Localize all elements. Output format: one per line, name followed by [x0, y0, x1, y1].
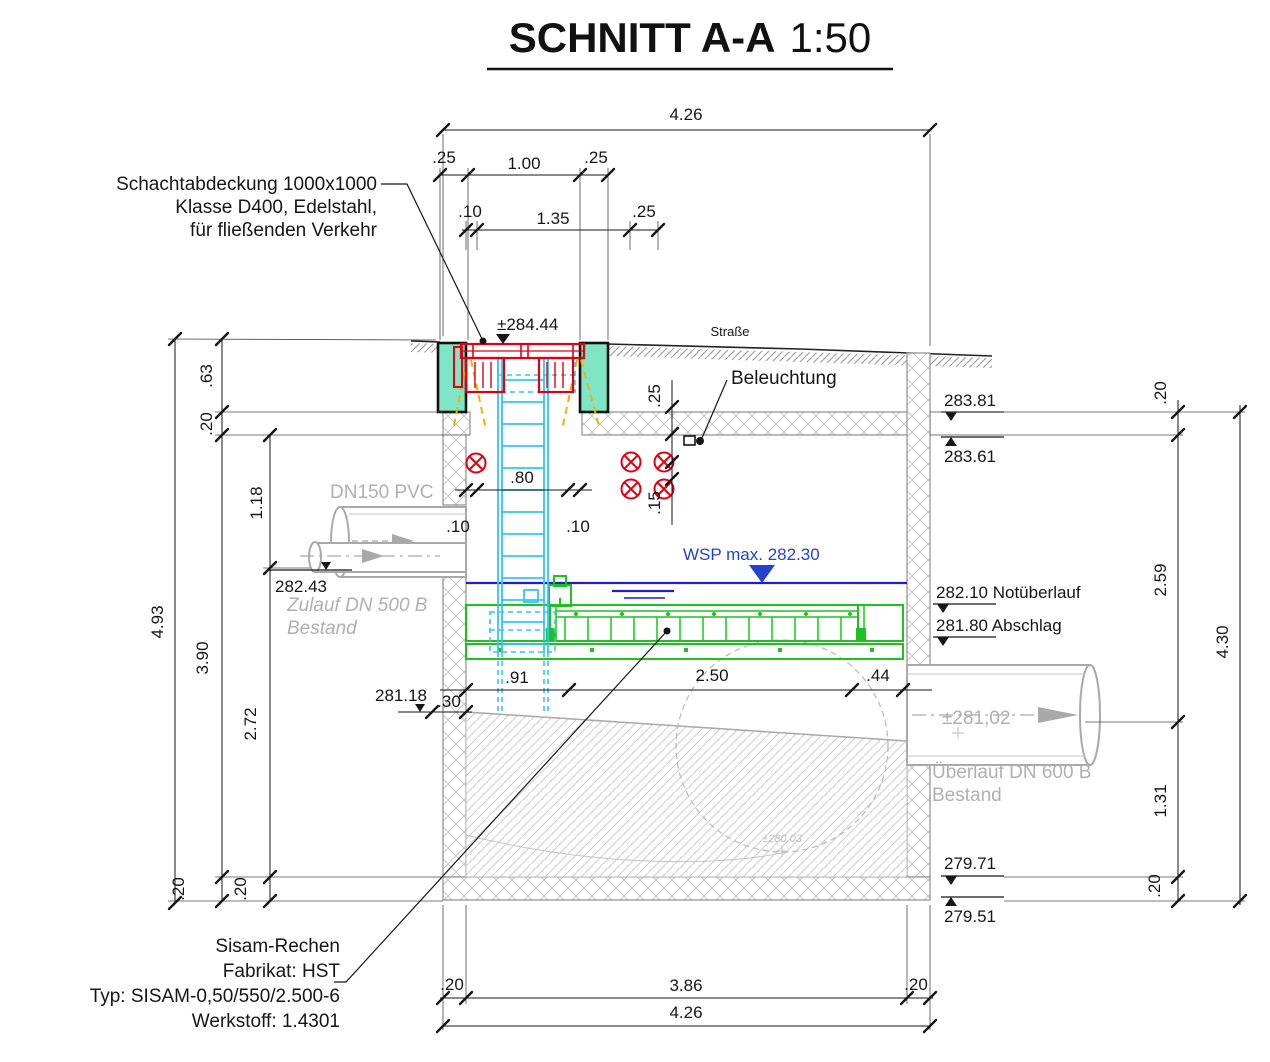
screen-motor: [549, 576, 571, 606]
cover-note-2: Klasse D400, Edelstahl,: [175, 197, 377, 218]
dim-left-c2-3: .20: [169, 877, 188, 901]
rake-note-4: Werkstoff: 1.4301: [192, 1011, 340, 1032]
level-notueberlauf: 282.10 Notüberlauf: [936, 583, 1081, 602]
lamp-icon: [684, 436, 695, 445]
level-roof-bot: 283.61: [944, 447, 996, 466]
dim-ladder-off-l: .10: [446, 517, 470, 536]
access-cover: [454, 344, 584, 392]
screen-bars: [565, 617, 841, 641]
drawing-sheet: SCHNITT A-A1:50 Straße ±280.03 DN150 PVC…: [0, 0, 1270, 1062]
dim-right-c1-0: .20: [1151, 381, 1170, 405]
inlet-label-1: Zulauf DN 500 B: [286, 595, 428, 616]
level-floor-bot: 279.51: [944, 907, 996, 926]
dim-left-c3-1: 2.72: [241, 707, 260, 740]
rake-note-3: Typ: SISAM-0,50/550/2.500-6: [90, 986, 340, 1007]
dim-right-c1-2: 1.31: [1151, 784, 1170, 817]
dim-right-c1-1: 2.59: [1151, 563, 1170, 596]
dim-top-r2-1: 1.00: [507, 154, 540, 173]
dim-top-r2-0: .25: [432, 148, 456, 167]
title-block: SCHNITT A-A1:50: [487, 14, 893, 69]
screen-foot-right: [856, 628, 866, 641]
invert-level-label: ±280.03: [762, 833, 803, 845]
dim-ladder-width: .80: [510, 468, 534, 487]
dim-wall-offset: .30: [437, 692, 461, 711]
dim-right-c1-3: .20: [1145, 874, 1164, 898]
dim-left-c2-1: .20: [197, 412, 216, 436]
level-top: ±284.44: [497, 315, 558, 334]
dim-bottom-total: 4.26: [669, 1003, 702, 1022]
dim-top-r3-2: .25: [632, 202, 656, 221]
right-wall-lower: [907, 765, 930, 877]
inlet-pipes: DN150 PVC Zulauf DN 500 B Bestand: [286, 482, 466, 639]
overflow-pipe: ±281,02 Überlauf DN 600 B Bestand: [907, 665, 1100, 806]
dim-top-total: 4.26: [669, 105, 702, 124]
rake-note-1: Sisam-Rechen: [215, 936, 340, 957]
wsp-label: WSP max. 282.30: [683, 545, 820, 564]
rake-leader-dot: [664, 628, 671, 635]
dim-top-r2-2: .25: [584, 148, 608, 167]
bar-screen: [466, 576, 903, 659]
dn150-label: DN150 PVC: [330, 482, 434, 503]
inlet-label-2: Bestand: [287, 618, 358, 639]
level-roof-top: 283.81: [944, 391, 996, 410]
dim-left-c2-0: .63: [197, 364, 216, 388]
dimensions-top: 4.26 .25 1.00 .25 .10 1.35 .25: [432, 105, 936, 346]
cover-note-3: für fließenden Verkehr: [190, 220, 378, 241]
chamber-structure: ±280.03: [443, 353, 930, 900]
roof-slab-left: [443, 412, 470, 435]
inlet-pipe-dn150: [315, 543, 466, 572]
left-wall-lower: [443, 577, 466, 877]
dim-right-total: 4.30: [1213, 625, 1232, 658]
dim-bottom-r1-0: .20: [440, 975, 464, 994]
dim-bottom-r1-1: 3.86: [669, 976, 702, 995]
dim-floor-0: .91: [505, 668, 529, 687]
overflow-axis-level: ±281,02: [942, 708, 1011, 729]
ladder-cage-bottom: [490, 612, 555, 652]
dim-anchor-spacing: .15: [645, 491, 664, 515]
dim-top-r3-1: 1.35: [536, 209, 569, 228]
level-left-floor: 281.18: [375, 686, 427, 705]
cover-note-1: Schachtabdeckung 1000x1000: [116, 174, 377, 195]
dim-top-r3-0: .10: [458, 202, 482, 221]
water-level: WSP max. 282.30: [466, 545, 907, 605]
page-title: SCHNITT A-A1:50: [509, 14, 872, 61]
dim-left-c3-2: .20: [231, 877, 250, 901]
street-hatch-left: [411, 343, 440, 353]
dim-roof-offset: .25: [645, 384, 664, 408]
level-inlet-invert: 282.43: [275, 577, 327, 596]
dim-left-c2-2: 3.90: [193, 641, 212, 674]
right-wall-upper: [907, 353, 930, 665]
level-abschlag: 281.80 Abschlag: [936, 616, 1062, 635]
cover-annotation: Schachtabdeckung 1000x1000 Klasse D400, …: [116, 174, 483, 341]
overflow-label-2: Bestand: [932, 785, 1002, 806]
rake-note-2: Fabrikat: HST: [223, 961, 341, 982]
dim-floor-1: 2.50: [695, 666, 728, 685]
overflow-label-1: Überlauf DN 600 B: [932, 762, 1091, 783]
dim-left-c3-0: 1.18: [247, 486, 266, 519]
dim-bottom-r1-2: .20: [904, 975, 928, 994]
dim-ladder-off-r: .10: [566, 517, 590, 536]
screen-rivets: [574, 612, 852, 616]
section-drawing: SCHNITT A-A1:50 Straße ±280.03 DN150 PVC…: [0, 0, 1270, 1062]
floor-slab: [443, 877, 930, 900]
dim-left-total: 4.93: [148, 605, 167, 638]
lighting-label: Beleuchtung: [731, 368, 837, 389]
wsp-marker: [749, 565, 775, 583]
dim-floor-2: .44: [866, 666, 890, 685]
roof-slab-right: [582, 412, 930, 435]
level-floor-top: 279.71: [944, 854, 996, 873]
street-label: Straße: [710, 324, 749, 339]
dimensions-bottom: .20 3.86 .20 4.26: [437, 905, 936, 1032]
